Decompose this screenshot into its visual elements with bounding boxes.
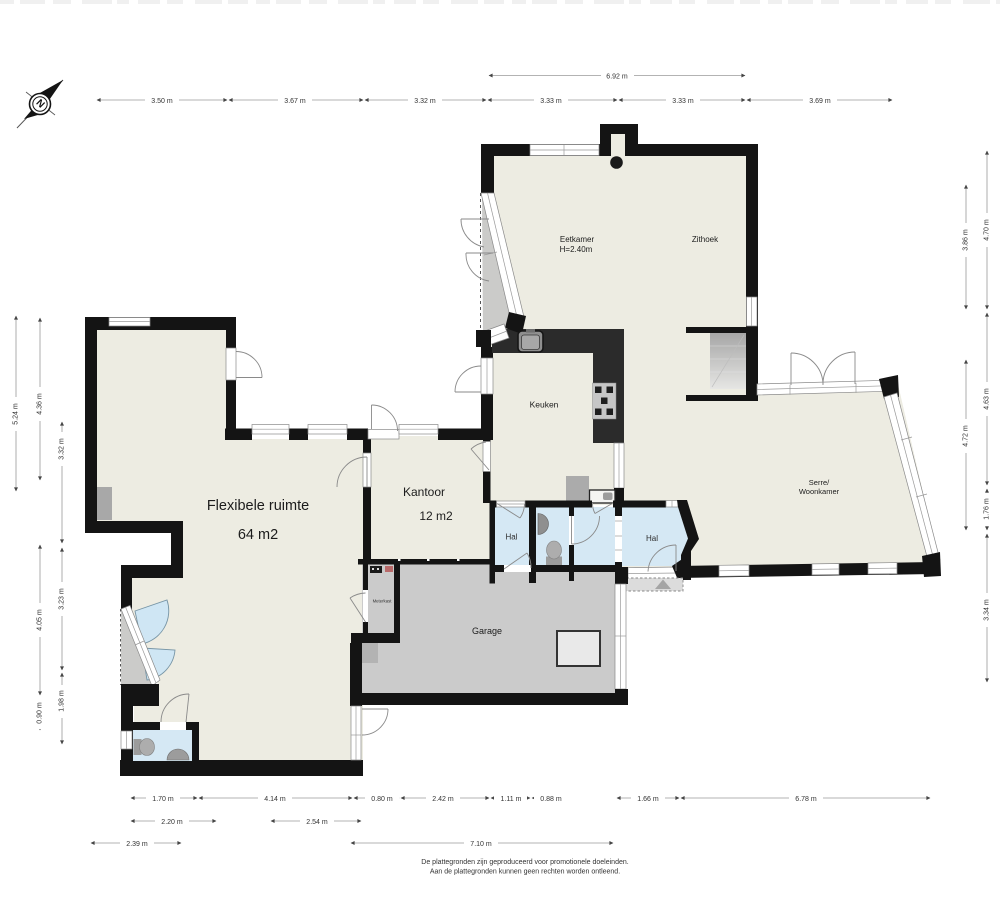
svg-text:1.11 m: 1.11 m <box>501 796 522 803</box>
svg-text:Kantoor: Kantoor <box>403 485 445 499</box>
svg-text:3.86 m: 3.86 m <box>963 229 970 251</box>
svg-text:0.88 m: 0.88 m <box>540 796 562 803</box>
svg-text:Woonkamer: Woonkamer <box>799 487 840 496</box>
svg-text:6.78 m: 6.78 m <box>795 796 817 803</box>
svg-text:H=2.40m: H=2.40m <box>560 245 593 254</box>
svg-text:5.24 m: 5.24 m <box>13 403 20 425</box>
svg-text:4.72 m: 4.72 m <box>963 425 970 447</box>
svg-text:3.69 m: 3.69 m <box>809 98 831 105</box>
svg-text:Meterkast: Meterkast <box>373 599 393 604</box>
svg-text:3.23 m: 3.23 m <box>59 588 66 610</box>
svg-text:3.32 m: 3.32 m <box>414 98 436 105</box>
svg-text:1.76 m: 1.76 m <box>984 498 991 520</box>
svg-text:1.98 m: 1.98 m <box>59 690 66 712</box>
svg-text:Aan de plattegronden kunnen ge: Aan de plattegronden kunnen geen rechten… <box>430 869 620 876</box>
svg-text:3.32 m: 3.32 m <box>59 438 66 460</box>
svg-text:2.54 m: 2.54 m <box>306 819 328 826</box>
svg-text:Flexibele ruimte: Flexibele ruimte <box>207 498 309 514</box>
svg-text:4.63 m: 4.63 m <box>984 388 991 410</box>
svg-text:3.34 m: 3.34 m <box>984 599 991 621</box>
svg-text:4.14 m: 4.14 m <box>264 796 286 803</box>
svg-text:Eetkamer: Eetkamer <box>560 235 595 244</box>
svg-text:1.66 m: 1.66 m <box>637 796 659 803</box>
svg-text:De plattegronden zijn geproduc: De plattegronden zijn geproduceerd voor … <box>421 859 628 866</box>
svg-text:7.10 m: 7.10 m <box>470 841 492 848</box>
svg-text:6.92 m: 6.92 m <box>606 74 628 81</box>
svg-text:Garage: Garage <box>472 626 502 636</box>
svg-text:2.39 m: 2.39 m <box>126 841 148 848</box>
svg-text:4.36 m: 4.36 m <box>37 393 44 415</box>
svg-text:0.80 m: 0.80 m <box>371 796 393 803</box>
svg-text:0.90 m: 0.90 m <box>37 702 44 724</box>
svg-text:Keuken: Keuken <box>530 400 559 410</box>
svg-text:3.67 m: 3.67 m <box>284 98 306 105</box>
svg-text:4.05 m: 4.05 m <box>37 609 44 631</box>
svg-text:Hal: Hal <box>646 534 658 543</box>
svg-text:3.33 m: 3.33 m <box>672 98 694 105</box>
svg-text:2.20 m: 2.20 m <box>161 819 183 826</box>
svg-text:3.50 m: 3.50 m <box>151 98 173 105</box>
svg-text:4.70 m: 4.70 m <box>984 219 991 241</box>
svg-text:Hal: Hal <box>505 533 517 542</box>
svg-text:1.70 m: 1.70 m <box>152 796 174 803</box>
svg-text:Zithoek: Zithoek <box>692 235 719 244</box>
svg-text:64 m2: 64 m2 <box>238 527 278 543</box>
svg-text:2.42 m: 2.42 m <box>432 796 454 803</box>
svg-text:12 m2: 12 m2 <box>419 509 453 523</box>
svg-text:Serre/: Serre/ <box>809 478 830 487</box>
svg-text:3.33 m: 3.33 m <box>540 98 562 105</box>
